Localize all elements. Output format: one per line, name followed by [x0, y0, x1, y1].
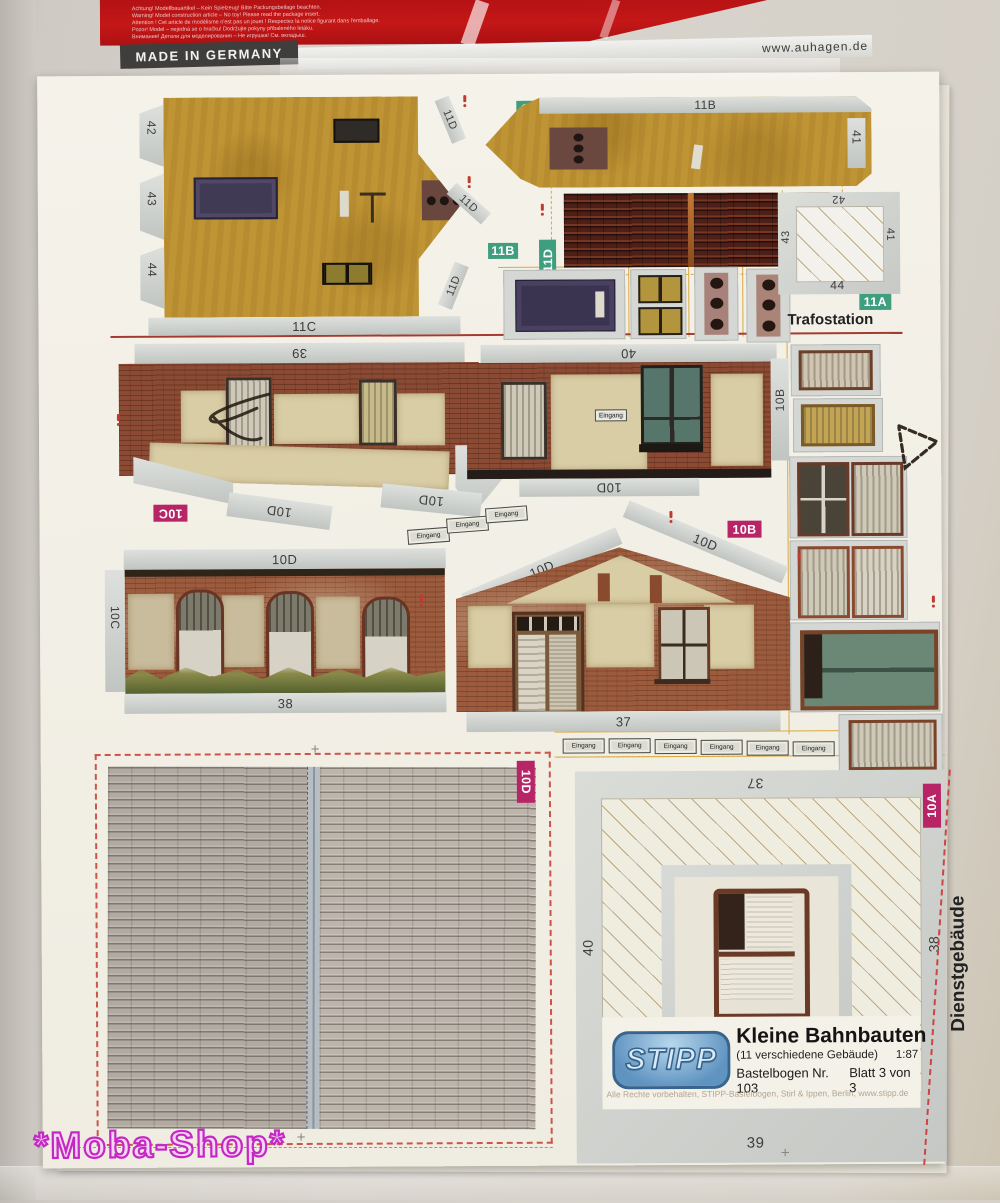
- part-roof-strip-11B: 11B 41: [485, 96, 871, 188]
- tab-label-43: 43: [780, 230, 792, 243]
- eingang-sign: Eingang: [446, 516, 489, 534]
- trafostation-title: Trafostation: [787, 311, 873, 328]
- gable-stud: [650, 575, 662, 603]
- register-mark: +: [297, 1133, 306, 1143]
- tab-label-44: 44: [830, 278, 844, 292]
- badge-10A: 10A: [923, 784, 941, 828]
- badge-label: 10B: [732, 522, 756, 536]
- eingang-sign: Eingang: [747, 740, 789, 755]
- eingang-label: Eingang: [599, 412, 623, 419]
- part-window-piece: [790, 540, 908, 621]
- eingang-label: Eingang: [802, 745, 826, 752]
- tab-43: 43: [140, 174, 164, 240]
- window-face: [801, 404, 875, 446]
- eingang-label: Eingang: [710, 744, 734, 751]
- arched-window: [176, 589, 224, 679]
- part-green-door-piece: [790, 622, 940, 713]
- wall-post: [340, 191, 349, 217]
- tab-40-top: 40: [481, 343, 777, 363]
- wall-door: [194, 177, 278, 219]
- stucco-panel: [586, 603, 654, 667]
- model-sheet-wrap: 42 43 44 11D 11D 11D 11C 11C 11B 41: [0, 0, 1000, 1203]
- wall-window: [333, 119, 379, 143]
- product-subtitle-row: (11 verschiedene Gebäude) 1:87: [736, 1049, 918, 1062]
- part-window-piece: [789, 456, 907, 539]
- badge-10D: 10D: [517, 761, 535, 803]
- copyright-line: Alle Rechte vorbehalten, STIPP-Bastelbog…: [606, 1088, 918, 1100]
- part-yellow-wall-11C: [163, 96, 460, 318]
- stucco-panel: [711, 374, 763, 466]
- stipp-logo: STIPP: [612, 1031, 730, 1090]
- ridge-center-line: [312, 767, 315, 1129]
- center-window-image: [713, 888, 810, 1019]
- center-bevel-square: [661, 864, 852, 1037]
- branding-block: STIPP Kleine Bahnbauten (11 verschiedene…: [602, 1016, 920, 1110]
- tab-label-10D: 10D: [266, 502, 293, 520]
- chimney-hole: [762, 321, 775, 332]
- strip-chimney-hole: [549, 127, 607, 169]
- tab-label-42: 42: [832, 193, 845, 205]
- stucco-panel: [222, 595, 264, 667]
- cut-mark: [798, 552, 801, 559]
- window-face: [797, 462, 849, 536]
- eingang-label: Eingang: [494, 510, 518, 519]
- tab-label-10D: 10D: [597, 480, 622, 495]
- part-window-piece: [791, 344, 881, 396]
- register-mark: +: [311, 745, 320, 755]
- badge-label: 10C: [158, 506, 182, 520]
- window-face: [799, 350, 873, 390]
- chimney-hole: [439, 196, 448, 205]
- tab-label-41: 41: [884, 228, 896, 241]
- tab-10D-top: 10D: [124, 548, 446, 570]
- tab-label-10D: 10D: [272, 552, 297, 567]
- register-mark: +: [781, 1148, 790, 1158]
- eingang-sign: Eingang: [407, 527, 450, 545]
- eingang-sign: Eingang: [701, 740, 743, 755]
- cut-mark: [932, 596, 935, 603]
- eingang-sign: Eingang: [655, 739, 697, 754]
- roof-half-left: [107, 767, 307, 1129]
- eingang-sign: Eingang: [793, 741, 835, 756]
- eingang-label: Eingang: [664, 743, 688, 750]
- photo-of-paper-model-sheet: { "header": { "warning_lines": [ "Achtun…: [0, 0, 1000, 1200]
- tab-label-41: 41: [849, 130, 863, 144]
- eingang-label: Eingang: [572, 742, 596, 749]
- subtitle-text: (11 verschiedene Gebäude): [736, 1049, 878, 1062]
- eingang-label: Eingang: [618, 742, 642, 749]
- cut-mark: [420, 594, 423, 601]
- window-white-panel: [721, 959, 793, 999]
- part-window-piece: [838, 714, 942, 773]
- copyright-text: Alle Rechte vorbehalten, STIPP-Bastelbog…: [606, 1088, 908, 1100]
- eingang-label: Eingang: [756, 744, 780, 751]
- tab-10B-side: 10B: [771, 358, 790, 460]
- roof-base-center: [796, 206, 884, 282]
- door-transom: [517, 617, 579, 631]
- stucco-panel: [397, 393, 445, 445]
- eingang-sign: Eingang: [595, 409, 627, 421]
- stucco-panel: [468, 606, 512, 668]
- gold-window: [638, 275, 682, 303]
- gable-window: [658, 607, 710, 683]
- window-rail: [719, 951, 795, 956]
- cut-mark: [463, 95, 466, 102]
- chimney-hole: [574, 145, 584, 153]
- window-sill: [654, 679, 710, 684]
- tab-label-40: 40: [580, 939, 596, 956]
- pen-scribble: [891, 412, 947, 476]
- tab-44: 44: [140, 247, 164, 309]
- window-white-panel: [746, 895, 792, 947]
- door-leaf: [549, 635, 576, 711]
- tab-42: 42: [139, 105, 163, 167]
- tab-label-37: 37: [747, 776, 764, 792]
- badge-11A: 11A: [859, 294, 891, 310]
- dienstgebaeude-label: Dienstgebäude: [947, 895, 969, 1031]
- tab-38-bottom: 38: [124, 692, 446, 714]
- window-face: [849, 720, 937, 770]
- tab-label-43: 43: [145, 192, 159, 206]
- wall-window-pair: [322, 263, 372, 285]
- product-title-text: Kleine Bahnbauten: [736, 1024, 926, 1048]
- window-sill: [639, 444, 703, 452]
- eave-strip: [125, 568, 445, 577]
- door-leaf: [518, 635, 545, 711]
- scale-label: 1:87: [896, 1049, 918, 1061]
- chimney-hole: [573, 134, 583, 142]
- tab-label-44: 44: [145, 263, 159, 277]
- tab-10D: 10D: [519, 478, 699, 497]
- arched-window: [266, 591, 314, 681]
- roof-ridge-line: [688, 193, 694, 267]
- curtain-window: [501, 382, 547, 460]
- tab-label-39: 39: [292, 345, 308, 360]
- pen-scribble: [199, 386, 281, 452]
- badge-10C: 10C: [153, 505, 187, 522]
- part-small-windows-piece: [630, 269, 686, 339]
- part-window-piece: [793, 398, 883, 452]
- badge-label: 11A: [864, 295, 888, 309]
- part-door-piece: [503, 269, 625, 340]
- window-dark-panel: [718, 894, 744, 950]
- green-window: [641, 365, 703, 445]
- cut-mark: [541, 204, 544, 211]
- tab-37-bottom: 37: [466, 710, 780, 732]
- eingang-label: Eingang: [416, 531, 440, 540]
- stucco-panel: [128, 594, 174, 670]
- chimney-hole: [574, 156, 584, 164]
- eingang-sign: Eingang: [485, 505, 528, 523]
- window-face: [852, 546, 904, 618]
- door-dark-edge: [804, 634, 822, 698]
- chimney-hole: [762, 300, 775, 311]
- badge-label: 10D: [519, 770, 533, 794]
- green-door-face: [800, 630, 938, 711]
- tab-label-38: 38: [278, 696, 294, 711]
- window-face: [798, 546, 850, 618]
- part-roof-base-11A: 42 43 41 44: [778, 192, 901, 295]
- stucco-panel: [551, 374, 648, 471]
- tab-label-42: 42: [144, 121, 158, 135]
- part-chimney-strip: [694, 267, 738, 341]
- tab-10C-side: 10C: [105, 570, 126, 692]
- stucco-panel: [274, 394, 359, 444]
- chimney-face: [704, 273, 728, 335]
- tab-label-40: 40: [621, 346, 637, 361]
- chimney-hole: [710, 278, 723, 289]
- stucco-panel: [316, 597, 360, 669]
- part-roof-base-10A: STIPP Kleine Bahnbauten (11 verschiedene…: [575, 770, 947, 1164]
- part-brick-wall-40: Eingang: [467, 362, 772, 480]
- tab-39-top: 39: [135, 342, 465, 364]
- chimney-hole: [710, 298, 723, 309]
- chimney-hole: [710, 319, 723, 330]
- badge-label: 11B: [491, 244, 515, 258]
- cut-mark: [468, 176, 471, 183]
- tab-label-37: 37: [616, 714, 632, 729]
- double-door: [512, 612, 585, 718]
- badge-11B: 11B: [488, 243, 518, 259]
- shop-watermark-text: *Moba-Shop*: [34, 1123, 287, 1166]
- chimney-hole: [426, 196, 435, 205]
- stipp-logo-text: STIPP: [625, 1043, 717, 1077]
- shop-watermark: *Moba-Shop*: [34, 1123, 287, 1167]
- tab-label-10B: 10B: [773, 388, 787, 411]
- eingang-sign: Eingang: [609, 738, 651, 753]
- roof-half-right: [319, 767, 536, 1129]
- tab-41: 41: [847, 118, 865, 168]
- curtain-window: [359, 379, 397, 445]
- tab-label-10C: 10C: [108, 606, 122, 630]
- part-weathered-wall-38: [125, 568, 446, 694]
- eingang-label: Eingang: [455, 520, 479, 529]
- tab-11C-bottom: 11C: [148, 316, 460, 336]
- chimney-face: [756, 274, 780, 336]
- gold-window: [638, 307, 682, 335]
- product-title: Kleine Bahnbauten: [736, 1024, 918, 1049]
- badge-label: 10A: [925, 794, 939, 818]
- chimney-hole: [762, 279, 775, 290]
- gable-stud: [598, 573, 610, 601]
- dienstgebaeude-title: Dienstgebäude: [947, 895, 970, 1031]
- door-tag: [595, 291, 604, 317]
- tab-label-11B: 11B: [694, 98, 716, 112]
- wall-bracket: [371, 193, 374, 223]
- stucco-panel: [704, 605, 754, 669]
- part-roof-shingle-10D: [107, 767, 536, 1130]
- tab-label-10D: 10D: [418, 492, 445, 509]
- tab-label-39: 39: [747, 1135, 765, 1152]
- strip-vent: [691, 144, 703, 169]
- trafostation-label: Trafostation: [787, 311, 873, 328]
- eingang-sign: Eingang: [563, 738, 605, 753]
- cut-mark: [117, 414, 120, 421]
- tab-label-11C: 11C: [292, 318, 316, 333]
- badge-10B: 10B: [727, 521, 761, 538]
- cut-mark: [669, 511, 672, 518]
- tab-11B-top: 11B: [539, 96, 871, 114]
